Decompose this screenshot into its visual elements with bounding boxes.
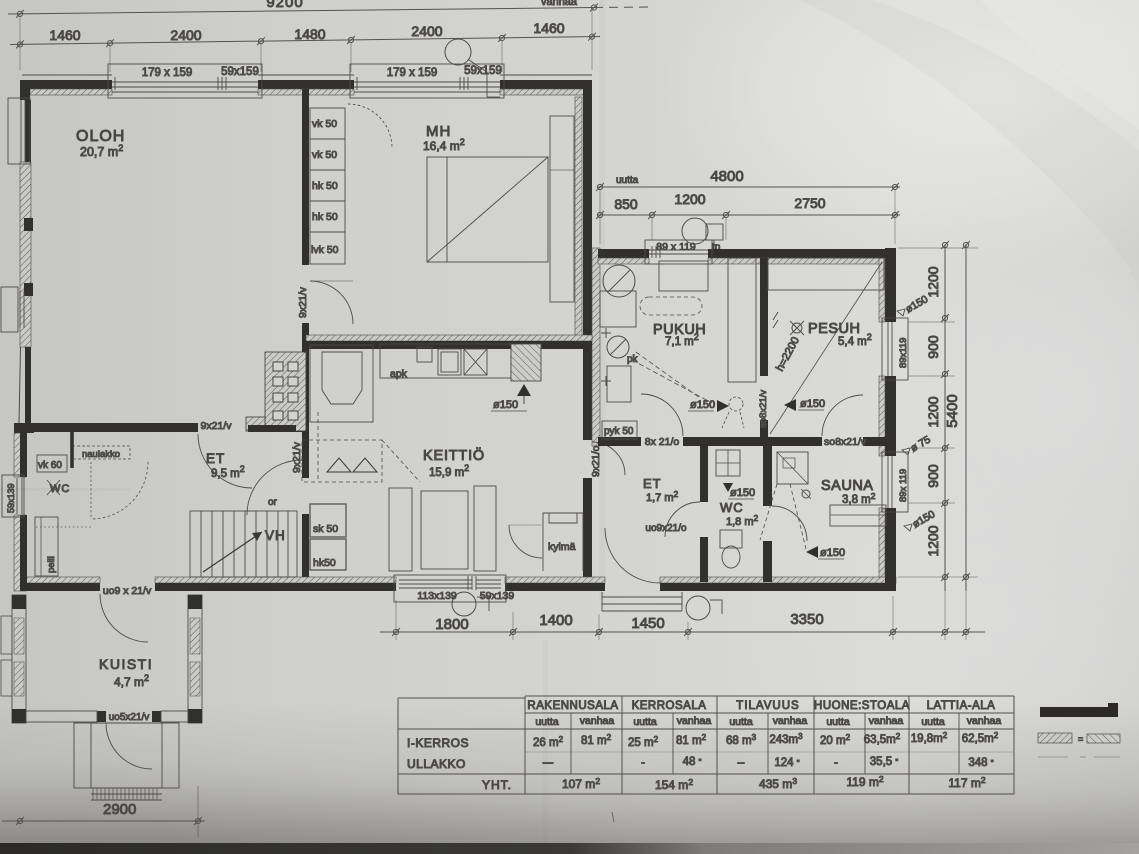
svg-text:1800: 1800 [435, 616, 468, 633]
svg-text:KUISTI: KUISTI [99, 656, 153, 672]
svg-text:MH: MH [426, 123, 451, 140]
svg-text:hk50: hk50 [313, 557, 336, 569]
svg-text:--: -- [737, 757, 745, 769]
svg-text:ø150: ø150 [800, 398, 825, 410]
svg-text:ULLAKKO: ULLAKKO [407, 757, 466, 771]
svg-text:179 x 159: 179 x 159 [387, 67, 438, 79]
svg-text:VH: VH [265, 528, 286, 543]
svg-text:1200: 1200 [925, 266, 941, 297]
svg-text:89 x 119: 89 x 119 [656, 241, 696, 253]
svg-text:59x139: 59x139 [480, 590, 515, 602]
svg-text:9x21/v: 9x21/v [201, 420, 233, 432]
svg-text:uutta: uutta [616, 175, 639, 186]
svg-text:apk: apk [390, 368, 408, 380]
svg-text:1460: 1460 [533, 20, 564, 36]
svg-text:1200: 1200 [925, 396, 941, 427]
svg-text:435 m3: 435 m3 [759, 776, 797, 791]
svg-text:2400: 2400 [411, 23, 442, 39]
svg-text:-: - [641, 757, 645, 769]
svg-text:62,5m2: 62,5m2 [962, 731, 999, 745]
svg-text:sk 50: sk 50 [313, 523, 338, 535]
svg-text:hk 50: hk 50 [312, 180, 338, 192]
svg-text:uutta: uutta [535, 716, 559, 728]
svg-text:9x21/v: 9x21/v [291, 441, 303, 473]
svg-text:KERROSALA: KERROSALA [632, 700, 707, 712]
svg-text:1480: 1480 [294, 26, 325, 42]
svg-text:348 ": 348 " [968, 757, 993, 769]
svg-text:154 m2: 154 m2 [655, 777, 693, 792]
svg-text:HUONE:STOALA: HUONE:STOALA [814, 700, 910, 712]
svg-text:vk 60: vk 60 [38, 460, 62, 471]
svg-text:8x 21/o: 8x 21/o [645, 436, 680, 448]
svg-text:ø150: ø150 [820, 547, 845, 559]
svg-text:uutta: uutta [826, 716, 850, 728]
svg-text:9x21/o: 9x21/o [590, 445, 602, 477]
svg-text:vk 50: vk 50 [312, 118, 337, 130]
svg-text:59x159: 59x159 [464, 65, 502, 77]
svg-text:vanhaa: vanhaa [773, 715, 808, 727]
svg-text:59x139: 59x139 [6, 483, 16, 513]
svg-text:vanhaa: vanhaa [677, 715, 712, 727]
svg-text:900: 900 [925, 335, 941, 359]
svg-text:ET: ET [206, 451, 225, 466]
svg-text:KEITTIÖ: KEITTIÖ [423, 446, 485, 464]
svg-text:vanhaa: vanhaa [580, 715, 615, 727]
svg-text:2900: 2900 [103, 801, 136, 818]
svg-text:lvk 50: lvk 50 [311, 244, 339, 256]
svg-text:so8x21/v: so8x21/v [758, 390, 769, 428]
svg-text:-: - [834, 757, 838, 769]
svg-text:uo5x21/v: uo5x21/v [109, 712, 150, 723]
svg-text:pyk 50: pyk 50 [604, 426, 634, 437]
svg-text:59x159: 59x159 [221, 66, 259, 78]
svg-text:107 m2: 107 m2 [562, 776, 600, 791]
svg-text:179 x 159: 179 x 159 [142, 67, 193, 79]
svg-text:113x139: 113x139 [417, 590, 457, 602]
svg-text:119 m2: 119 m2 [846, 774, 883, 789]
svg-text:5400: 5400 [944, 394, 961, 427]
svg-text:uutta: uutta [921, 716, 945, 728]
svg-text:vanhaa: vanhaa [869, 715, 904, 727]
svg-text:20,7 m2: 20,7 m2 [80, 143, 123, 159]
svg-text:vk 50: vk 50 [312, 149, 337, 161]
svg-text:89x 119: 89x 119 [898, 469, 909, 502]
svg-text:1200: 1200 [925, 525, 941, 556]
svg-text:vanhaa: vanhaa [967, 715, 1002, 727]
svg-text:uo9 x 21/v: uo9 x 21/v [103, 585, 152, 597]
svg-text:4800: 4800 [710, 168, 743, 185]
svg-text:RAKENNUSALA: RAKENNUSALA [527, 700, 618, 712]
svg-text:TILAVUUS: TILAVUUS [736, 700, 799, 712]
svg-text:9x21/v: 9x21/v [297, 286, 309, 318]
svg-text:uutta: uutta [729, 716, 753, 728]
svg-text:35,5 ": 35,5 " [870, 756, 899, 768]
svg-text:YHT.: YHT. [482, 778, 512, 792]
svg-text:or: or [268, 497, 278, 508]
svg-text:2750: 2750 [794, 195, 825, 211]
svg-text:pk: pk [627, 354, 639, 365]
svg-text:89x119: 89x119 [898, 338, 909, 368]
svg-text:ø150: ø150 [730, 487, 755, 499]
svg-text:63,5m2: 63,5m2 [864, 732, 901, 746]
svg-text:1460: 1460 [49, 27, 80, 43]
svg-text:WC: WC [720, 500, 744, 515]
svg-text:3350: 3350 [790, 611, 823, 628]
svg-text:1200: 1200 [674, 191, 705, 207]
svg-text:16,4 m2: 16,4 m2 [423, 137, 465, 153]
svg-text:9200: 9200 [266, 0, 303, 11]
svg-text:vanhaa: vanhaa [541, 0, 578, 8]
svg-text:uutta: uutta [633, 716, 657, 728]
svg-text:3,8 m2: 3,8 m2 [842, 491, 876, 506]
svg-text:1450: 1450 [631, 615, 664, 632]
svg-text:peili: peili [46, 556, 57, 573]
svg-text:1400: 1400 [539, 612, 572, 629]
svg-text:124 ": 124 " [774, 757, 799, 769]
svg-text:hk 50: hk 50 [312, 211, 338, 223]
svg-text:4,7 m2: 4,7 m2 [114, 673, 149, 689]
svg-text:900: 900 [925, 464, 941, 488]
svg-text:ET: ET [643, 476, 662, 491]
svg-text:2400: 2400 [170, 27, 201, 43]
svg-text:850: 850 [614, 196, 638, 212]
svg-text:PESUH: PESUH [808, 321, 860, 337]
svg-text:117 m2: 117 m2 [948, 775, 985, 790]
svg-text:48 ": 48 " [683, 756, 702, 768]
svg-text:so8x21/v: so8x21/v [824, 436, 867, 448]
svg-text:kylmä: kylmä [548, 541, 576, 553]
svg-text:I-KERROS: I-KERROS [407, 736, 469, 750]
svg-text:ø150: ø150 [690, 399, 715, 411]
svg-text:ø150: ø150 [493, 399, 518, 411]
svg-text:---: --- [542, 757, 554, 769]
svg-text:243m3: 243m3 [769, 732, 803, 746]
svg-text:LATTIA-ALA: LATTIA-ALA [927, 700, 996, 712]
svg-text:=: = [1078, 734, 1083, 744]
svg-text:WC: WC [50, 483, 70, 495]
svg-text:SAUNA: SAUNA [821, 478, 873, 494]
svg-text:19,8m2: 19,8m2 [911, 731, 948, 745]
svg-text:naulakko: naulakko [82, 449, 120, 460]
